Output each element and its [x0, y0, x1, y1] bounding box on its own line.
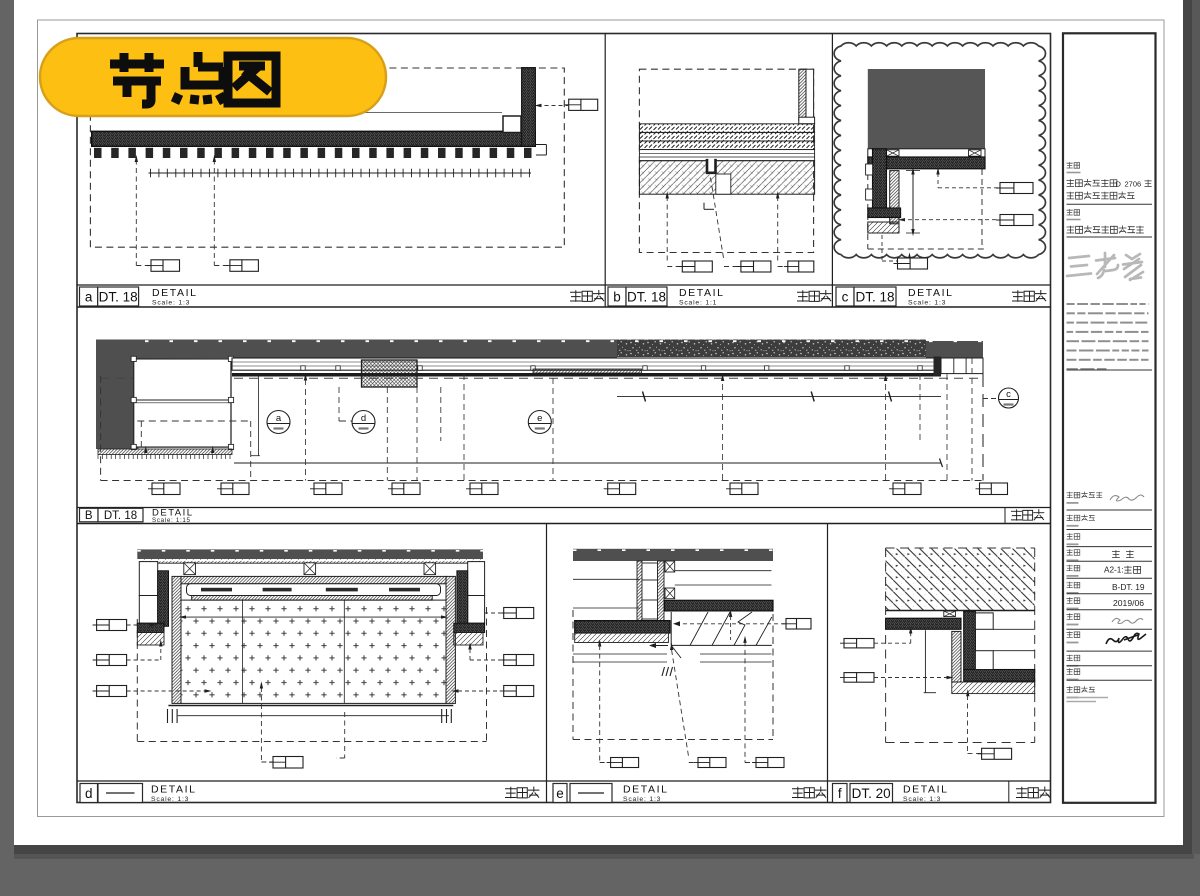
svg-text:DT. 18: DT. 18	[104, 510, 137, 522]
svg-text:Scale: 1:1: Scale: 1:1	[679, 300, 717, 307]
svg-text:Scale: 1:3: Scale: 1:3	[903, 796, 941, 803]
svg-text:Scale: 1:15: Scale: 1:15	[152, 517, 191, 524]
svg-text:DETAIL: DETAIL	[679, 287, 725, 299]
svg-text:Scale: 1:3: Scale: 1:3	[152, 300, 190, 307]
svg-text:DT. 18: DT. 18	[855, 290, 894, 305]
svg-text:e: e	[556, 786, 564, 801]
svg-text:2706: 2706	[1125, 180, 1142, 189]
svg-text:DETAIL: DETAIL	[623, 784, 669, 796]
svg-text:B-DT. 19: B-DT. 19	[1112, 582, 1145, 592]
svg-text:DT. 20: DT. 20	[852, 786, 891, 801]
svg-text:DT. 18: DT. 18	[99, 290, 138, 305]
svg-text:B: B	[85, 510, 93, 522]
svg-text:a: a	[85, 290, 93, 305]
svg-text:DETAIL: DETAIL	[152, 287, 198, 299]
svg-text:d: d	[85, 786, 93, 801]
svg-text:b: b	[613, 290, 621, 305]
svg-text:DETAIL: DETAIL	[908, 287, 954, 299]
svg-text:DETAIL: DETAIL	[903, 784, 949, 796]
svg-text:c: c	[1006, 389, 1011, 400]
svg-text:A2-1:: A2-1:	[1104, 566, 1124, 575]
svg-text:DT. 18: DT. 18	[627, 290, 666, 305]
svg-text:d: d	[361, 413, 366, 424]
svg-text:2019/06: 2019/06	[1113, 598, 1144, 608]
svg-text:c: c	[842, 290, 849, 305]
svg-text:Scale: 1:3: Scale: 1:3	[908, 300, 946, 307]
svg-text:e: e	[537, 413, 542, 424]
svg-text:a: a	[276, 413, 282, 424]
svg-text:f: f	[838, 786, 842, 801]
svg-text:DETAIL: DETAIL	[151, 784, 197, 796]
svg-text:D: D	[1116, 180, 1122, 189]
svg-text:Scale: 1:3: Scale: 1:3	[151, 796, 189, 803]
svg-text:Scale: 1:3: Scale: 1:3	[623, 796, 661, 803]
